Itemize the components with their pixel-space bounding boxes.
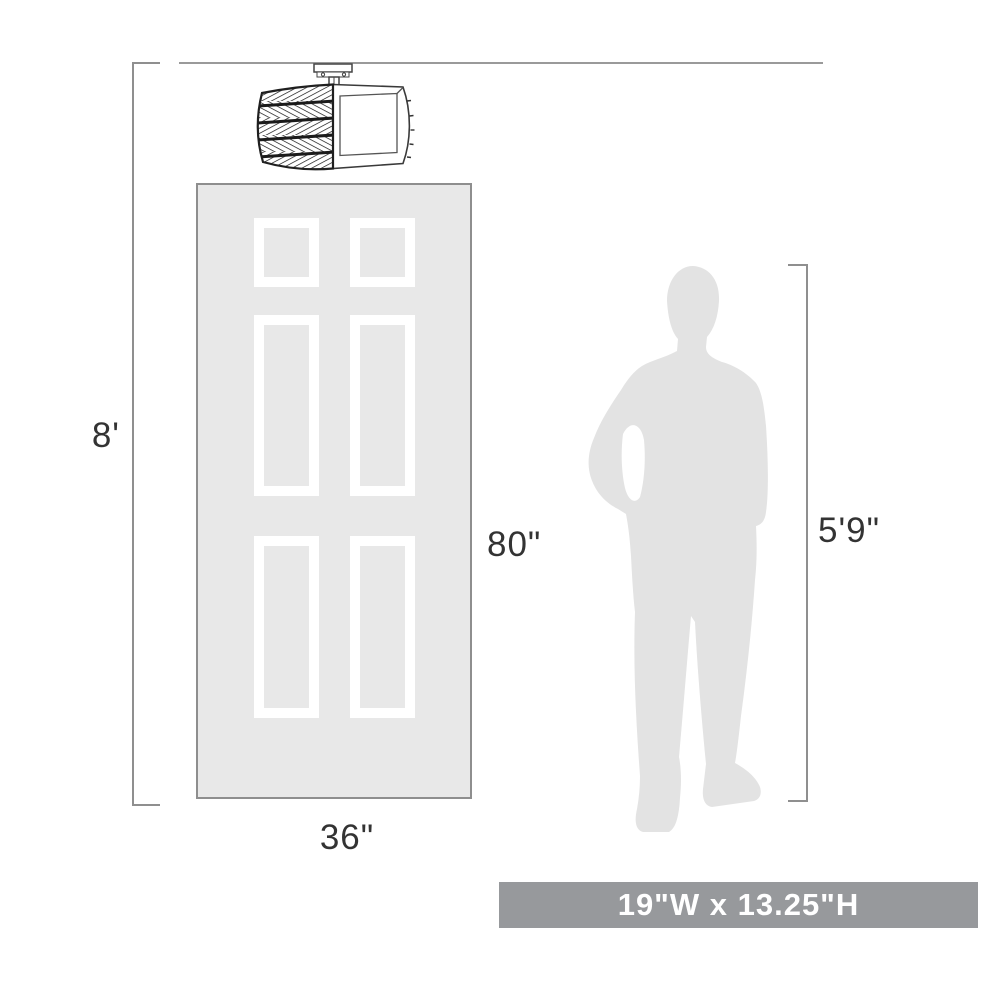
- door-panel: [254, 218, 319, 287]
- person-height-dimension-bracket: [788, 264, 808, 802]
- man-silhouette-icon: [580, 255, 790, 840]
- door-width-label: 36": [312, 818, 382, 858]
- ceiling-height-dimension-bracket: [132, 62, 160, 806]
- door-panel: [350, 315, 415, 496]
- fixture-size-label: 19"W x 13.25"H: [618, 887, 860, 923]
- person-height-label: 5'9": [818, 511, 880, 551]
- door-icon: [196, 183, 472, 799]
- door-panel: [254, 536, 319, 718]
- door-panel: [254, 315, 319, 496]
- light-fixture-icon: [248, 58, 423, 176]
- door-panel: [350, 536, 415, 718]
- door-height-label: 80": [487, 525, 541, 565]
- ceiling-height-label: 8': [82, 416, 120, 456]
- fixture-size-banner: 19"W x 13.25"H: [499, 882, 978, 928]
- door-panel: [350, 218, 415, 287]
- scale-diagram: 8': [0, 0, 1000, 1000]
